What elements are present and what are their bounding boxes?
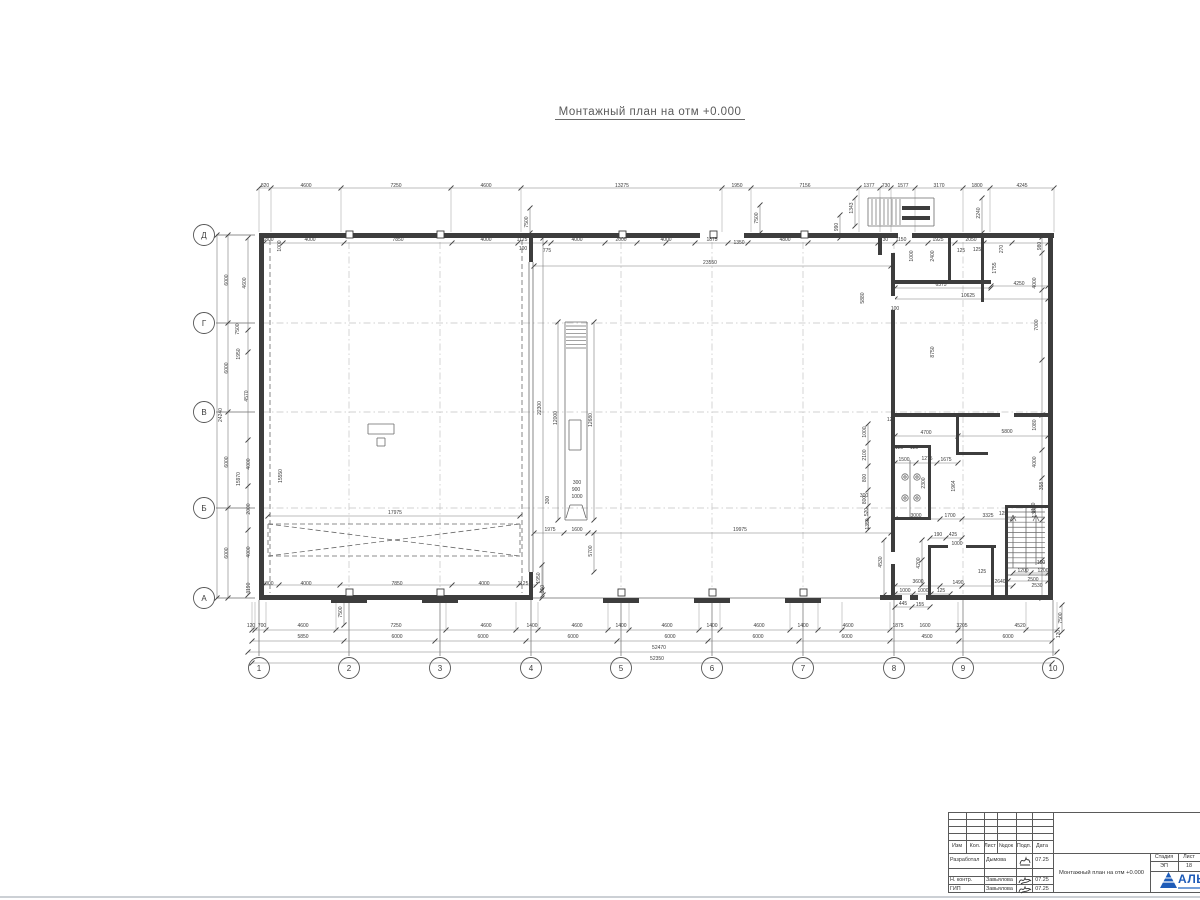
- dimension-text: 22300: [537, 401, 543, 415]
- signature: [1018, 884, 1032, 894]
- dimension-text: 6000: [224, 274, 230, 285]
- dimension-text: 1000: [862, 426, 868, 437]
- dimension-text: 7850: [392, 237, 403, 243]
- dimension-text: 7850: [391, 581, 402, 587]
- tb-line: [966, 812, 967, 853]
- company-logo-subline: [1178, 887, 1200, 889]
- wall-segment: [785, 598, 821, 603]
- dimension-text: 2000: [615, 237, 626, 243]
- tb-sheet-value: 18: [1186, 863, 1192, 869]
- dimension-text: 1000: [277, 240, 283, 251]
- dimension-text: 730: [882, 183, 891, 189]
- wall-segment: [529, 238, 533, 262]
- tb-col-podp: Подп.: [1017, 843, 1031, 849]
- wall-segment: [422, 598, 458, 603]
- dimension-text: 1190: [246, 582, 252, 593]
- dimension-text: 6000: [1002, 634, 1013, 640]
- dimension-text: 13275: [615, 183, 629, 189]
- wall-segment: [529, 572, 533, 600]
- tb-col-data: Дата: [1036, 843, 1048, 849]
- dimension-text: 1000: [571, 494, 582, 500]
- wall-opening: [891, 552, 895, 564]
- dimension-text: 1400: [706, 623, 717, 629]
- dimension-text: 1350: [733, 240, 744, 246]
- dimension-text: 1125: [518, 581, 529, 587]
- dimension-text: 1000: [917, 588, 928, 594]
- dimension-text: 15970: [236, 472, 242, 486]
- dimension-text: 6000: [664, 634, 675, 640]
- axis-label: В: [201, 408, 206, 417]
- axis-label: Д: [201, 231, 207, 240]
- dimension-text: 1350: [865, 518, 871, 529]
- dimension-text: 7500: [338, 606, 344, 617]
- wall-segment: [603, 598, 639, 603]
- dimension-text: 6000: [224, 547, 230, 558]
- dimension-text: 3000: [910, 513, 921, 519]
- dimension-text: 6000: [224, 456, 230, 467]
- column-marker: [437, 231, 444, 238]
- plan-dashed-line: [268, 524, 520, 556]
- dimension-text: 1964: [951, 480, 957, 491]
- dimension-text: 4000: [304, 237, 315, 243]
- dimension-text: 7250: [390, 183, 401, 189]
- wall-segment: [259, 595, 531, 600]
- dimension-text: 10625: [961, 293, 975, 299]
- dimension-text: 100: [1037, 560, 1046, 566]
- dimension-text: 6375: [935, 282, 946, 288]
- dimension-text: 125: [887, 417, 896, 423]
- tb-col-list: Лист: [984, 843, 996, 849]
- axis-label: 9: [961, 664, 966, 673]
- dimension-text: 4800: [779, 237, 790, 243]
- dimension-text: 1755: [992, 262, 998, 273]
- dimension-text: 1700: [944, 513, 955, 519]
- dimension-text: 300: [545, 496, 551, 505]
- dimension-text: 1000: [899, 588, 910, 594]
- tb-line: [984, 812, 985, 893]
- dimension-text: 120: [247, 623, 256, 629]
- tb-line: [948, 833, 1053, 834]
- plumbing-fixture: [916, 476, 918, 478]
- wall-segment: [893, 413, 1053, 417]
- dimension-text: 125: [937, 588, 946, 594]
- tb-line: [1150, 861, 1200, 862]
- axis-label: 6: [710, 664, 715, 673]
- dimension-text: 125: [910, 445, 919, 451]
- dimension-text: 800: [862, 496, 868, 505]
- dimension-text: 52470: [652, 645, 666, 651]
- dimension-text: 2640: [994, 579, 1005, 585]
- axis-label: 7: [801, 664, 806, 673]
- dimension-text: 4600: [300, 183, 311, 189]
- dimension-text: 1950: [236, 348, 242, 359]
- dimension-text: 24240: [218, 408, 224, 422]
- dimension-text: 125: [957, 248, 966, 254]
- dimension-text: 5700: [588, 545, 594, 556]
- dimension-text: 1200: [1017, 568, 1028, 574]
- dimension-text: 425: [949, 532, 958, 538]
- plumbing-fixture: [914, 474, 920, 480]
- dimension-text: 3205: [956, 623, 967, 629]
- dimension-text: 4570: [244, 390, 250, 401]
- wall-segment: [948, 238, 951, 282]
- company-logo-icon: [1160, 872, 1177, 888]
- axis-label: Г: [202, 319, 207, 328]
- dimension-text: 1950: [536, 572, 542, 583]
- dimension-text: 700: [258, 623, 267, 629]
- dimension-text: 23550: [703, 260, 717, 266]
- tb-role: ГИП: [950, 886, 961, 892]
- wall-segment: [956, 452, 988, 455]
- tb-line: [948, 812, 1200, 813]
- dimension-text: 1875: [892, 623, 903, 629]
- dimension-text: 5800: [1001, 429, 1012, 435]
- column-marker: [801, 231, 808, 238]
- dimension-text: 1000: [951, 541, 962, 547]
- tb-name: Завьялова: [986, 877, 1013, 883]
- dimension-text: 125: [999, 511, 1008, 517]
- dimension-text: 730: [880, 237, 889, 243]
- dimension-text: 4000: [1032, 456, 1038, 467]
- floor-plan-canvas: 12345678910ДГВБА820460072504600132751950…: [0, 0, 1200, 800]
- tb-line: [948, 826, 1053, 827]
- axis-label: 2: [347, 664, 352, 673]
- axis-label: 5: [619, 664, 624, 673]
- column-marker: [346, 231, 353, 238]
- dimension-text: 4000: [571, 237, 582, 243]
- dimension-text: 3170: [933, 183, 944, 189]
- dimension-text: 2100: [862, 449, 868, 460]
- dimension-text: 270: [999, 245, 1005, 254]
- wall-segment: [991, 545, 994, 598]
- axis-label: 8: [892, 664, 897, 673]
- dimension-text: 1377: [863, 183, 874, 189]
- wall-segment: [259, 233, 264, 600]
- dimension-text: 4000: [660, 237, 671, 243]
- dimension-text: 1950: [731, 183, 742, 189]
- dimension-text: 4600: [297, 623, 308, 629]
- wall-segment: [956, 415, 959, 455]
- company-logo-text: АЛЬЯ: [1178, 872, 1200, 886]
- plumbing-fixture: [902, 495, 908, 501]
- plan-line: [582, 505, 586, 518]
- dimension-text: 12680: [588, 413, 594, 427]
- dimension-text: 4000: [478, 581, 489, 587]
- sheet: { "page_title": "Монтажный план на отм +…: [0, 0, 1200, 900]
- column-marker: [618, 589, 625, 596]
- wall-opening: [902, 595, 910, 600]
- dimension-text: 2240: [976, 207, 982, 218]
- dimension-text: 7500: [235, 323, 241, 334]
- wall-opening: [1000, 413, 1014, 417]
- dimension-text: 52350: [650, 656, 664, 662]
- dimension-text: 4000: [300, 581, 311, 587]
- dimension-text: 520: [864, 508, 870, 517]
- dimension-text: 4600: [480, 183, 491, 189]
- dimension-text: 1380: [1032, 506, 1038, 517]
- dimension-text: 7500: [524, 216, 530, 227]
- dimension-text: 1080: [1032, 419, 1038, 430]
- dimension-text: 4250: [1013, 281, 1024, 287]
- dimension-text: 6000: [477, 634, 488, 640]
- dimension-text: 120: [1056, 630, 1062, 639]
- dimension-text: 3600: [912, 579, 923, 585]
- dimension-text: 4700: [920, 430, 931, 436]
- dimension-text: 550: [540, 585, 546, 594]
- axis-label: Б: [201, 504, 206, 513]
- plumbing-fixture: [902, 474, 908, 480]
- signature: [1018, 854, 1032, 867]
- title-block: Изм Кол. Лист №док Подп. Дата Разработал…: [948, 812, 1200, 893]
- dimension-text: 4600: [242, 277, 248, 288]
- dimension-text: 125: [973, 247, 982, 253]
- dimension-text: 1675: [940, 457, 951, 463]
- wall-segment: [981, 238, 984, 302]
- tb-line: [997, 812, 998, 853]
- dimension-text: 800: [862, 474, 868, 483]
- dimension-text: 900: [572, 487, 581, 493]
- dimension-text: 1600: [571, 527, 582, 533]
- tb-date: 07.25: [1035, 857, 1049, 863]
- dimension-text: 6000: [567, 634, 578, 640]
- tb-col-izm: Изм: [952, 843, 962, 849]
- dimension-text: 100: [891, 306, 900, 312]
- dimension-text: 17975: [388, 510, 402, 516]
- axis-label: А: [201, 594, 207, 603]
- dimension-text: 6000: [752, 634, 763, 640]
- tb-line: [948, 868, 1053, 869]
- dimension-text: 4600: [753, 623, 764, 629]
- dimension-text: 7500: [1058, 612, 1064, 623]
- column-marker: [437, 589, 444, 596]
- dimension-text: 1275: [921, 456, 932, 462]
- tb-doc-title: Монтажный план на отм +0.000: [1055, 855, 1148, 891]
- dimension-text: 1577: [897, 183, 908, 189]
- tb-role: Н. контр.: [950, 877, 972, 883]
- axis-label: 4: [529, 664, 534, 673]
- axis-label: 1: [257, 664, 262, 673]
- dimension-text: 4000: [246, 458, 252, 469]
- dimension-text: 4600: [842, 623, 853, 629]
- dimension-text: 7250: [390, 623, 401, 629]
- dimension-text: 4500: [921, 634, 932, 640]
- dimension-text: 15550: [278, 469, 284, 483]
- dimension-text: 4520: [1014, 623, 1025, 629]
- dimension-text: 358: [1039, 482, 1045, 491]
- dimension-text: 125: [978, 569, 987, 575]
- tb-line: [1053, 812, 1054, 893]
- dimension-text: 4000: [1032, 277, 1038, 288]
- wall-segment: [902, 216, 930, 220]
- wall-segment: [1005, 505, 1051, 508]
- dimension-text: 1125: [517, 237, 528, 243]
- dimension-text: 6000: [391, 634, 402, 640]
- plan-dashed-line: [268, 524, 520, 556]
- dimension-text: 1000: [262, 581, 273, 587]
- dimension-text: 8750: [930, 346, 936, 357]
- plumbing-fixture: [904, 476, 906, 478]
- dimension-text: 1400: [797, 623, 808, 629]
- dimension-text: 1400: [615, 623, 626, 629]
- dimension-text: 4600: [661, 623, 672, 629]
- dimension-text: 155: [916, 602, 925, 608]
- dimension-text: 100: [519, 246, 528, 252]
- tb-stage-value: ЭП: [1160, 863, 1168, 869]
- plumbing-fixture: [916, 497, 918, 499]
- dimension-text: 775: [543, 248, 552, 254]
- dimension-text: 1600: [919, 623, 930, 629]
- tb-name: Дымова: [986, 857, 1006, 863]
- axis-label: 3: [438, 664, 443, 673]
- dimension-text: 125: [895, 445, 904, 451]
- dimension-text: 1343: [849, 202, 855, 213]
- dimension-text: 300: [573, 480, 582, 486]
- tb-line: [948, 892, 1200, 893]
- tb-col-ndok: №док: [999, 843, 1013, 849]
- dimension-text: 4600: [571, 623, 582, 629]
- dimension-text: 2050: [965, 237, 976, 243]
- dimension-text: 7000: [1034, 319, 1040, 330]
- wall-segment: [902, 206, 930, 210]
- dimension-text: 6000: [841, 634, 852, 640]
- tb-stage-label: Стадия: [1155, 854, 1173, 860]
- tb-date: 07.25: [1035, 877, 1049, 883]
- dimension-text: 4530: [878, 556, 884, 567]
- dimension-text: 6000: [224, 362, 230, 373]
- column-marker: [800, 589, 807, 596]
- dimension-text: 990: [834, 223, 840, 232]
- wall-opening: [918, 595, 926, 600]
- column-marker: [709, 589, 716, 596]
- dimension-text: 820: [261, 183, 270, 189]
- tb-sheet-label: Лист: [1183, 854, 1195, 860]
- dimension-text: 1800: [262, 237, 273, 243]
- dimension-text: 4200: [916, 557, 922, 568]
- dimension-text: 1400: [526, 623, 537, 629]
- wall-segment: [331, 598, 367, 603]
- dimension-text: 1925: [932, 237, 943, 243]
- dimension-text: 4600: [480, 623, 491, 629]
- tb-line: [1178, 853, 1179, 871]
- dimension-text: 4245: [1016, 183, 1027, 189]
- plumbing-fixture: [904, 497, 906, 499]
- dimension-text: 5880: [860, 292, 866, 303]
- tb-line: [948, 840, 1053, 841]
- dimension-text: 4000: [480, 237, 491, 243]
- dimension-text: 4000: [246, 546, 252, 557]
- tb-line: [1032, 812, 1033, 893]
- plan-line: [566, 505, 570, 518]
- tb-line: [948, 819, 1053, 820]
- tb-role: Разработал: [950, 857, 979, 863]
- dimension-text: 1875: [706, 237, 717, 243]
- plumbing-fixture: [914, 495, 920, 501]
- dimension-text: 5850: [297, 634, 308, 640]
- page-bottom-edge: [0, 896, 1200, 898]
- dimension-text: 980: [1037, 242, 1043, 251]
- dimension-text: 3325: [982, 513, 993, 519]
- column-marker: [346, 589, 353, 596]
- dimension-text: 2000: [246, 503, 252, 514]
- dimension-text: 2300: [921, 477, 927, 488]
- dimension-text: 7500: [754, 212, 760, 223]
- dimension-text: 190: [934, 532, 943, 538]
- dimension-text: 1490: [952, 580, 963, 586]
- tb-line: [1016, 812, 1017, 893]
- dimension-text: 12000: [553, 411, 559, 425]
- dimension-text: 1150: [896, 237, 907, 243]
- dimension-text: 2400: [930, 250, 936, 261]
- dimension-text: 1000: [909, 250, 915, 261]
- tb-line: [1150, 853, 1151, 893]
- wall-segment: [694, 598, 730, 603]
- dimension-text: 7156: [799, 183, 810, 189]
- tb-name: Завьялова: [986, 886, 1013, 892]
- tb-date: 07.25: [1035, 886, 1049, 892]
- dimension-text: 1200: [1037, 568, 1048, 574]
- dimension-text: 1500: [898, 457, 909, 463]
- dimension-text: 2530: [1031, 583, 1042, 589]
- dimension-text: 19975: [733, 527, 747, 533]
- dimension-text: 1800: [971, 183, 982, 189]
- tb-col-kol: Кол.: [970, 843, 981, 849]
- dimension-text: 1975: [544, 527, 555, 533]
- dimension-text: 445: [899, 601, 908, 607]
